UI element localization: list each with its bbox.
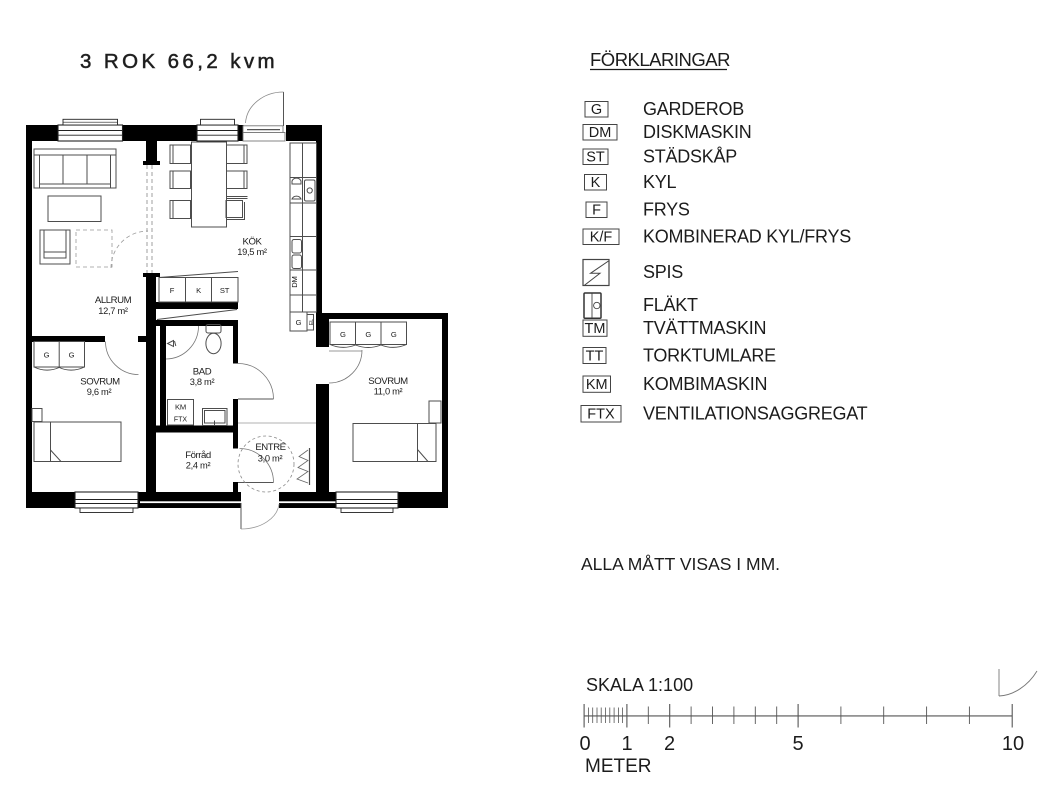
svg-text:SPIS: SPIS [643,262,683,282]
svg-text:KÖK: KÖK [243,237,263,248]
svg-text:G: G [296,318,302,327]
svg-text:DM: DM [589,125,612,141]
svg-text:5: 5 [792,733,803,755]
svg-text:KM: KM [175,403,186,412]
svg-text:F: F [170,286,175,295]
svg-text:SOVRUM: SOVRUM [368,376,408,387]
svg-text:TVÄTTMASKIN: TVÄTTMASKIN [643,318,766,338]
svg-text:G: G [365,330,371,339]
svg-text:FTX: FTX [587,407,615,423]
svg-text:G: G [340,330,346,339]
svg-text:ST: ST [586,150,605,166]
svg-text:ENTRÉ: ENTRÉ [255,442,285,453]
svg-text:10: 10 [1002,733,1024,755]
svg-text:0: 0 [579,733,590,755]
svg-text:F: F [592,203,601,219]
svg-text:ST: ST [220,286,230,295]
svg-text:ALLRUM: ALLRUM [95,295,132,306]
svg-text:SKALA 1:100: SKALA 1:100 [586,675,693,695]
svg-text:DISKMASKIN: DISKMASKIN [643,122,752,142]
svg-text:K: K [591,175,601,191]
svg-text:3,0 m²: 3,0 m² [258,454,283,464]
svg-text:TT: TT [586,349,604,365]
svg-text:KOMBINERAD KYL/FRYS: KOMBINERAD KYL/FRYS [643,227,851,247]
svg-text:KYL: KYL [643,172,677,192]
svg-text:ALLA MÅTT VISAS I MM.: ALLA MÅTT VISAS I MM. [581,554,780,574]
svg-text:Förråd: Förråd [185,450,211,461]
svg-text:1: 1 [621,733,632,755]
svg-text:9,6 m²: 9,6 m² [87,387,112,397]
svg-text:2: 2 [664,733,675,755]
svg-text:11,0 m²: 11,0 m² [374,387,403,397]
svg-text:TORKTUMLARE: TORKTUMLARE [643,346,776,366]
svg-text:3 ROK 66,2 kvm: 3 ROK 66,2 kvm [80,50,278,73]
svg-text:SOVRUM: SOVRUM [80,377,120,388]
svg-text:STÄDSKÅP: STÄDSKÅP [643,147,737,167]
svg-text:K/F: K/F [590,230,613,246]
svg-text:METER: METER [585,756,652,777]
svg-text:G: G [44,351,50,360]
svg-text:19,5 m²: 19,5 m² [237,247,267,257]
svg-text:3,8 m²: 3,8 m² [190,377,215,387]
svg-text:GARDEROB: GARDEROB [643,99,744,119]
svg-text:FLÄKT: FLÄKT [643,295,698,315]
svg-text:G: G [391,330,397,339]
svg-text:FTX: FTX [174,417,188,424]
svg-text:BAD: BAD [193,367,212,378]
svg-text:12,7 m²: 12,7 m² [98,306,128,316]
svg-text:K: K [196,286,201,295]
svg-text:EL: EL [309,319,315,325]
svg-text:KOMBIMASKIN: KOMBIMASKIN [643,374,767,394]
svg-text:TM: TM [585,321,606,337]
svg-text:KM: KM [586,377,608,393]
svg-text:G: G [591,102,602,118]
svg-text:DM: DM [290,276,299,287]
svg-text:FRYS: FRYS [643,200,690,220]
svg-text:VENTILATIONSAGGREGAT: VENTILATIONSAGGREGAT [643,404,868,424]
svg-text:FÖRKLARINGAR: FÖRKLARINGAR [590,49,730,70]
svg-text:G: G [69,351,75,360]
svg-text:2,4 m²: 2,4 m² [186,461,211,471]
